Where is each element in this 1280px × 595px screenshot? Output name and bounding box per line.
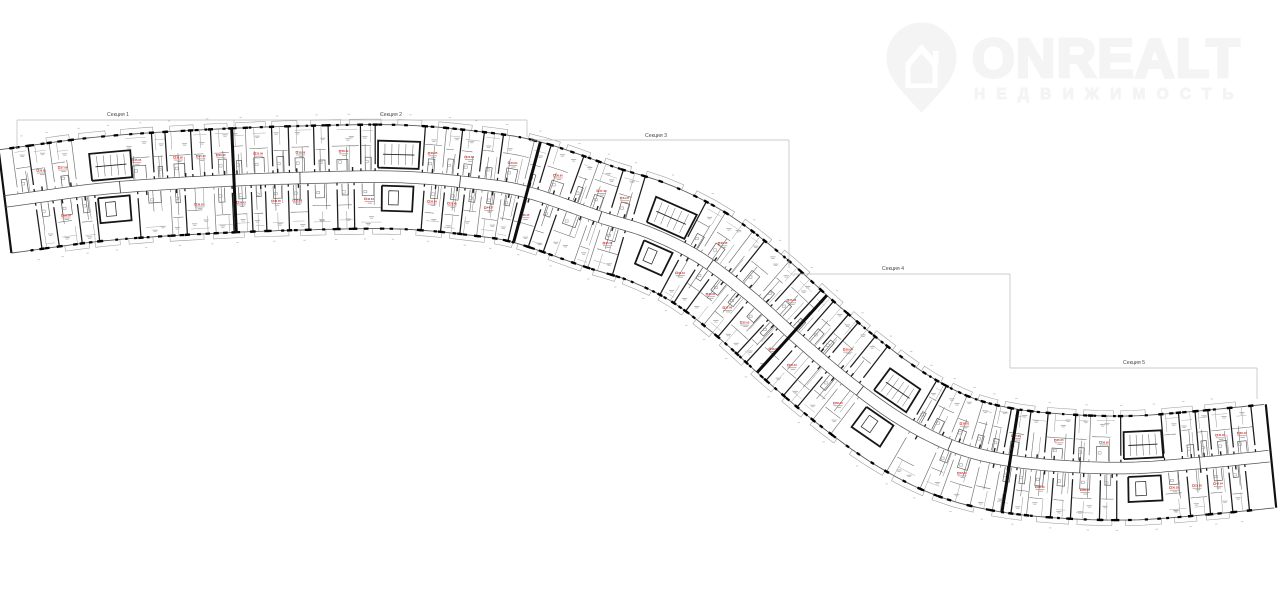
svg-text:58.43: 58.43 [239,200,246,204]
svg-text:36.81: 36.81 [963,422,970,426]
svg-text:36.35: 36.35 [274,199,281,203]
svg-text:38.26: 38.26 [299,150,306,154]
svg-text:ONREALT: ONREALT [972,27,1241,89]
svg-text:36.92: 36.92 [1102,440,1109,444]
svg-text:25.05: 25.05 [1057,438,1064,442]
svg-text:40.64: 40.64 [367,197,374,201]
svg-text:36.81: 36.81 [709,292,716,296]
svg-text:36.35: 36.35 [431,151,438,155]
svg-text:33.09: 33.09 [960,471,967,475]
svg-text:25.05: 25.05 [135,158,142,162]
svg-text:37.46: 37.46 [599,189,606,193]
svg-text:НЕДВИЖИМОСТЬ: НЕДВИЖИМОСТЬ [974,86,1245,103]
svg-text:36.81: 36.81 [39,168,46,172]
svg-text:36.40: 36.40 [219,153,226,157]
svg-text:36.40: 36.40 [836,401,843,405]
svg-text:39.04: 39.04 [846,348,853,352]
svg-text:36.35: 36.35 [1172,486,1179,490]
svg-text:38.26: 38.26 [1038,485,1045,489]
svg-text:Секция 5: Секция 5 [1123,360,1145,366]
svg-text:Секция 2: Секция 2 [380,112,402,118]
svg-text:37.66: 37.66 [725,306,732,310]
svg-text:38.26: 38.26 [197,202,204,206]
svg-text:45.40: 45.40 [199,154,206,158]
svg-text:45.40: 45.40 [790,363,797,367]
svg-text:58.43: 58.43 [342,149,349,153]
svg-text:36.40: 36.40 [1240,431,1247,435]
svg-text:Секция 1: Секция 1 [107,112,129,118]
svg-text:Секция 4: Секция 4 [882,266,904,272]
svg-text:25.36: 25.36 [606,241,613,245]
svg-text:36.45: 36.45 [721,241,728,245]
svg-text:40.64: 40.64 [511,161,518,165]
svg-text:37.66: 37.66 [61,165,68,169]
svg-text:23.68: 23.68 [295,198,302,202]
svg-text:Секция 3: Секция 3 [645,133,667,139]
svg-text:44.27: 44.27 [487,206,494,210]
svg-text:39.04: 39.04 [678,271,685,275]
svg-text:37.46: 37.46 [450,201,457,205]
svg-text:36.60: 36.60 [556,173,563,177]
svg-text:23.68: 23.68 [1195,484,1202,488]
svg-text:23.68: 23.68 [467,155,474,159]
svg-text:36.92: 36.92 [176,155,183,159]
svg-text:36.45: 36.45 [523,213,530,217]
svg-text:58.43: 58.43 [1083,488,1090,492]
svg-text:33.09: 33.09 [64,213,71,217]
svg-text:25.05: 25.05 [743,320,750,324]
svg-text:44.27: 44.27 [623,196,630,200]
svg-text:45.40: 45.40 [1218,433,1225,437]
svg-text:33.09: 33.09 [256,152,263,156]
svg-text:40.64: 40.64 [1216,482,1223,486]
svg-text:36.60: 36.60 [430,199,437,203]
svg-text:25.36: 25.36 [790,298,797,302]
